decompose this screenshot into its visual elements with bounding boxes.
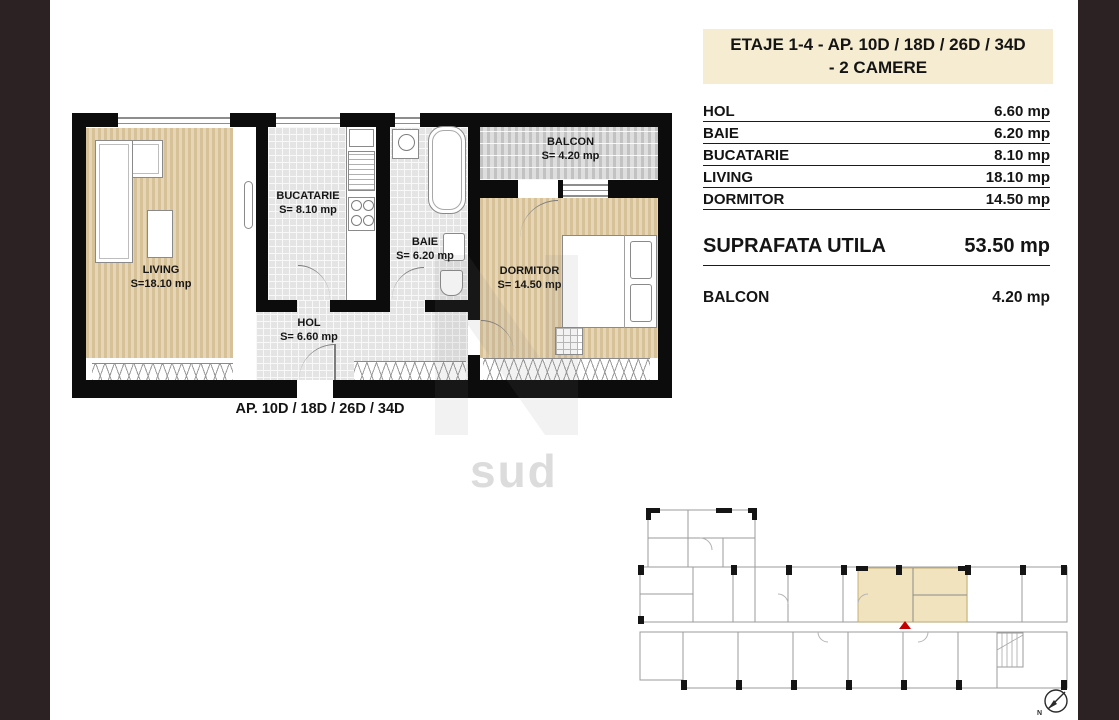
row-value: 8.10 mp [994,147,1050,164]
row-value: 18.10 mp [986,169,1050,186]
stove-burner [363,215,374,226]
room-area: S=18.10 mp [86,277,236,291]
balcony-value: 4.20 mp [992,289,1050,307]
wall [256,300,297,312]
wall [330,300,390,312]
wall [376,127,390,300]
room-name: DORMITOR [477,264,582,278]
wardrobe [555,327,583,355]
room-name: BAIE [375,235,475,249]
row-value: 6.20 mp [994,125,1050,142]
header-line2: - 2 CAMERE [829,57,927,80]
right-frame-bar [1078,0,1119,720]
north-label: N [1037,710,1042,717]
total-value: 53.50 mp [964,235,1050,258]
row-value: 14.50 mp [986,191,1050,208]
table-row: LIVING 18.10 mp [703,166,1050,188]
balcony-label: BALCON [703,289,769,307]
plan-caption: AP. 10D / 18D / 26D / 34D [180,401,460,417]
bathroom-window [395,113,420,127]
row-label: BAIE [703,125,739,142]
left-frame-bar [0,0,50,720]
bedroom-window-sill [483,358,650,382]
areas-table: HOL 6.60 mp BAIE 6.20 mp BUCATARIE 8.10 … [703,100,1050,307]
table-row: DORMITOR 14.50 mp [703,188,1050,210]
kitchen-window [276,113,340,127]
header-band: ETAJE 1-4 - AP. 10D / 18D / 26D / 34D - … [703,29,1053,84]
room-label-hol: HOL S= 6.60 mp [259,316,359,345]
room-name: BALCON [518,135,623,149]
wall [658,113,672,398]
room-label-bucatarie: BUCATARIE S= 8.10 mp [258,189,358,218]
room-area: S= 14.50 mp [477,278,582,292]
bed-headboard-line [624,235,625,328]
washing-machine-drum [398,134,415,151]
radiator [244,181,253,229]
room-label-baie: BAIE S= 6.20 mp [375,235,475,264]
pillow [630,284,652,322]
room-label-dormitor: DORMITOR S= 14.50 mp [477,264,582,293]
entrance-door-opening [297,380,333,398]
wall [425,300,468,312]
kitchen-unit [348,151,375,191]
pillow [630,241,652,279]
room-area: S= 8.10 mp [258,203,358,217]
bathtub [428,126,466,214]
sofa [95,140,133,263]
room-name: BUCATARIE [258,189,358,203]
living-window [118,113,230,127]
balcony-row: BALCON 4.20 mp [703,289,1050,307]
row-value: 6.60 mp [994,103,1050,120]
page: ETAJE 1-4 - AP. 10D / 18D / 26D / 34D - … [0,0,1119,720]
room-area: S= 6.60 mp [259,330,359,344]
total-row: SUPRAFATA UTILA 53.50 mp [703,235,1050,266]
row-label: HOL [703,103,735,120]
entrance-door-leaf [334,344,336,380]
wall [468,355,480,380]
table-row: BUCATARIE 8.10 mp [703,144,1050,166]
stove-burner [363,200,374,211]
table-row: BAIE 6.20 mp [703,122,1050,144]
room-label-living: LIVING S=18.10 mp [86,263,236,292]
room-name: HOL [259,316,359,330]
wall [72,113,86,398]
row-label: BUCATARIE [703,147,789,164]
row-label: DORMITOR [703,191,784,208]
key-plan-wall-stubs [638,508,1067,690]
header-line1: ETAJE 1-4 - AP. 10D / 18D / 26D / 34D [730,34,1025,57]
kitchen-sink [349,129,374,147]
table-row: HOL 6.60 mp [703,100,1050,122]
compass-icon: N [1037,690,1067,717]
row-label: LIVING [703,169,753,186]
room-area: S= 6.20 mp [375,249,475,263]
room-area: S= 4.20 mp [518,149,623,163]
room-label-balcon: BALCON S= 4.20 mp [518,135,623,164]
toilet [440,270,463,296]
watermark-text: sud [470,445,558,497]
coffee-table [147,210,173,258]
wall [72,380,672,398]
room-name: LIVING [86,263,236,277]
key-plan: N [628,498,1075,718]
total-label: SUPRAFATA UTILA [703,235,886,258]
bedroom-balcony-window [563,180,608,198]
stairs [997,633,1023,667]
hall-closet [354,361,466,382]
floor-plan: LIVING S=18.10 mp BUCATARIE S= 8.10 mp B… [72,113,672,398]
balcony-door-opening [518,180,558,198]
wall [608,180,672,198]
wall [480,180,518,198]
